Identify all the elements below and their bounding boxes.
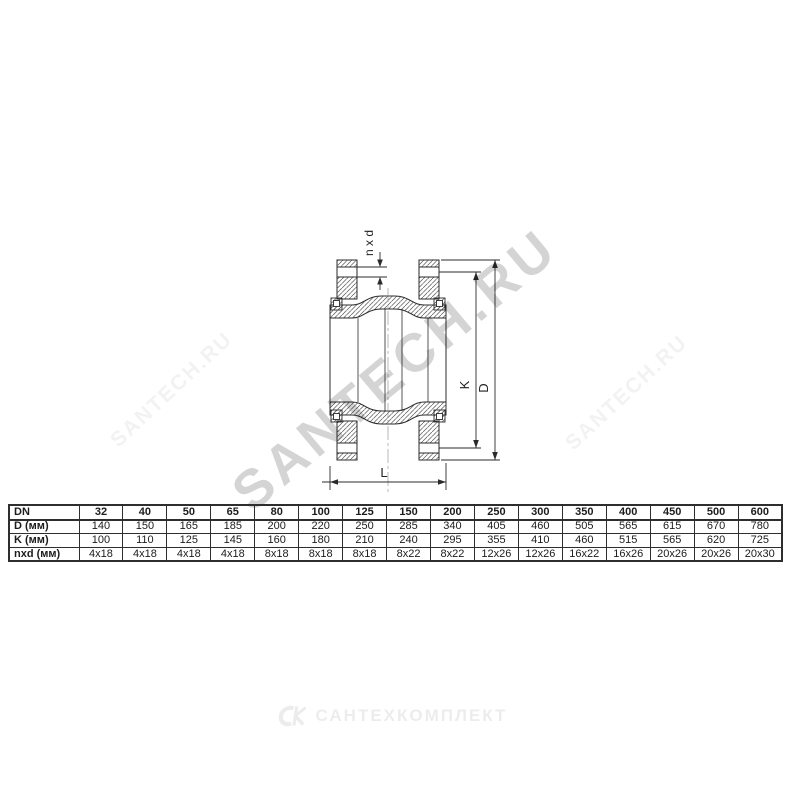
- value-cell: 220: [299, 520, 343, 534]
- value-cell: 460: [562, 534, 606, 548]
- value-cell: 150: [123, 520, 167, 534]
- value-cell: 65: [211, 505, 255, 520]
- value-cell: 20x26: [650, 547, 694, 561]
- value-cell: 250: [474, 505, 518, 520]
- value-cell: 565: [606, 520, 650, 534]
- value-cell: 165: [167, 520, 211, 534]
- value-cell: 110: [123, 534, 167, 548]
- value-cell: 615: [650, 520, 694, 534]
- value-cell: 12x26: [474, 547, 518, 561]
- value-cell: 40: [123, 505, 167, 520]
- dim-nxd: [357, 252, 387, 290]
- value-cell: 4x18: [211, 547, 255, 561]
- table-row: DN32405065801001251502002503003504004505…: [9, 505, 782, 520]
- value-cell: 355: [474, 534, 518, 548]
- value-cell: 140: [79, 520, 123, 534]
- value-cell: 4x18: [167, 547, 211, 561]
- dim-D: [441, 260, 500, 460]
- value-cell: 295: [431, 534, 475, 548]
- dimensions-table: DN32405065801001251502002503003504004505…: [8, 504, 783, 562]
- value-cell: 20x26: [694, 547, 738, 561]
- value-cell: 16x26: [606, 547, 650, 561]
- value-cell: 8x22: [431, 547, 475, 561]
- value-cell: 405: [474, 520, 518, 534]
- value-cell: 80: [255, 505, 299, 520]
- value-cell: 8x18: [299, 547, 343, 561]
- value-cell: 100: [299, 505, 343, 520]
- value-cell: 125: [167, 534, 211, 548]
- value-cell: 300: [518, 505, 562, 520]
- row-label-cell: K (мм): [9, 534, 79, 548]
- dim-label-K: K: [457, 380, 472, 389]
- value-cell: 780: [738, 520, 782, 534]
- dim-label-D: D: [476, 383, 491, 392]
- row-label-cell: D (мм): [9, 520, 79, 534]
- value-cell: 20x30: [738, 547, 782, 561]
- technical-drawing: n x d K D: [0, 0, 800, 800]
- value-cell: 240: [387, 534, 431, 548]
- value-cell: 725: [738, 534, 782, 548]
- value-cell: 515: [606, 534, 650, 548]
- dim-label-nxd: n x d: [362, 230, 376, 256]
- value-cell: 505: [562, 520, 606, 534]
- table-row: D (мм)1401501651852002202502853404054605…: [9, 520, 782, 534]
- page: SANTECH.RU SANTECH.RU: [0, 0, 800, 800]
- santehkomplekt-logo-icon: [277, 704, 307, 728]
- value-cell: 200: [431, 505, 475, 520]
- value-cell: 565: [650, 534, 694, 548]
- value-cell: 150: [387, 505, 431, 520]
- table-row: K (мм)1001101251451601802102402953554104…: [9, 534, 782, 548]
- value-cell: 460: [518, 520, 562, 534]
- value-cell: 50: [167, 505, 211, 520]
- value-cell: 210: [343, 534, 387, 548]
- dim-label-L: L: [380, 465, 387, 480]
- table-row: nxd (мм)4x184x184x184x188x188x188x188x22…: [9, 547, 782, 561]
- value-cell: 4x18: [123, 547, 167, 561]
- value-cell: 185: [211, 520, 255, 534]
- row-label-cell: nxd (мм): [9, 547, 79, 561]
- value-cell: 250: [343, 520, 387, 534]
- value-cell: 285: [387, 520, 431, 534]
- value-cell: 400: [606, 505, 650, 520]
- value-cell: 340: [431, 520, 475, 534]
- value-cell: 200: [255, 520, 299, 534]
- value-cell: 16x22: [562, 547, 606, 561]
- footer-brand: САНТЕХКОМПЛЕКТ: [277, 704, 508, 728]
- value-cell: 350: [562, 505, 606, 520]
- row-label-cell: DN: [9, 505, 79, 520]
- value-cell: 160: [255, 534, 299, 548]
- value-cell: 8x22: [387, 547, 431, 561]
- value-cell: 180: [299, 534, 343, 548]
- dimensions-table-body: DN32405065801001251502002503003504004505…: [9, 505, 782, 561]
- value-cell: 670: [694, 520, 738, 534]
- value-cell: 4x18: [79, 547, 123, 561]
- value-cell: 450: [650, 505, 694, 520]
- value-cell: 410: [518, 534, 562, 548]
- footer-brand-text: САНТЕХКОМПЛЕКТ: [316, 706, 508, 726]
- value-cell: 100: [79, 534, 123, 548]
- value-cell: 8x18: [255, 547, 299, 561]
- value-cell: 12x26: [518, 547, 562, 561]
- value-cell: 32: [79, 505, 123, 520]
- value-cell: 620: [694, 534, 738, 548]
- value-cell: 125: [343, 505, 387, 520]
- value-cell: 600: [738, 505, 782, 520]
- value-cell: 8x18: [343, 547, 387, 561]
- value-cell: 145: [211, 534, 255, 548]
- value-cell: 500: [694, 505, 738, 520]
